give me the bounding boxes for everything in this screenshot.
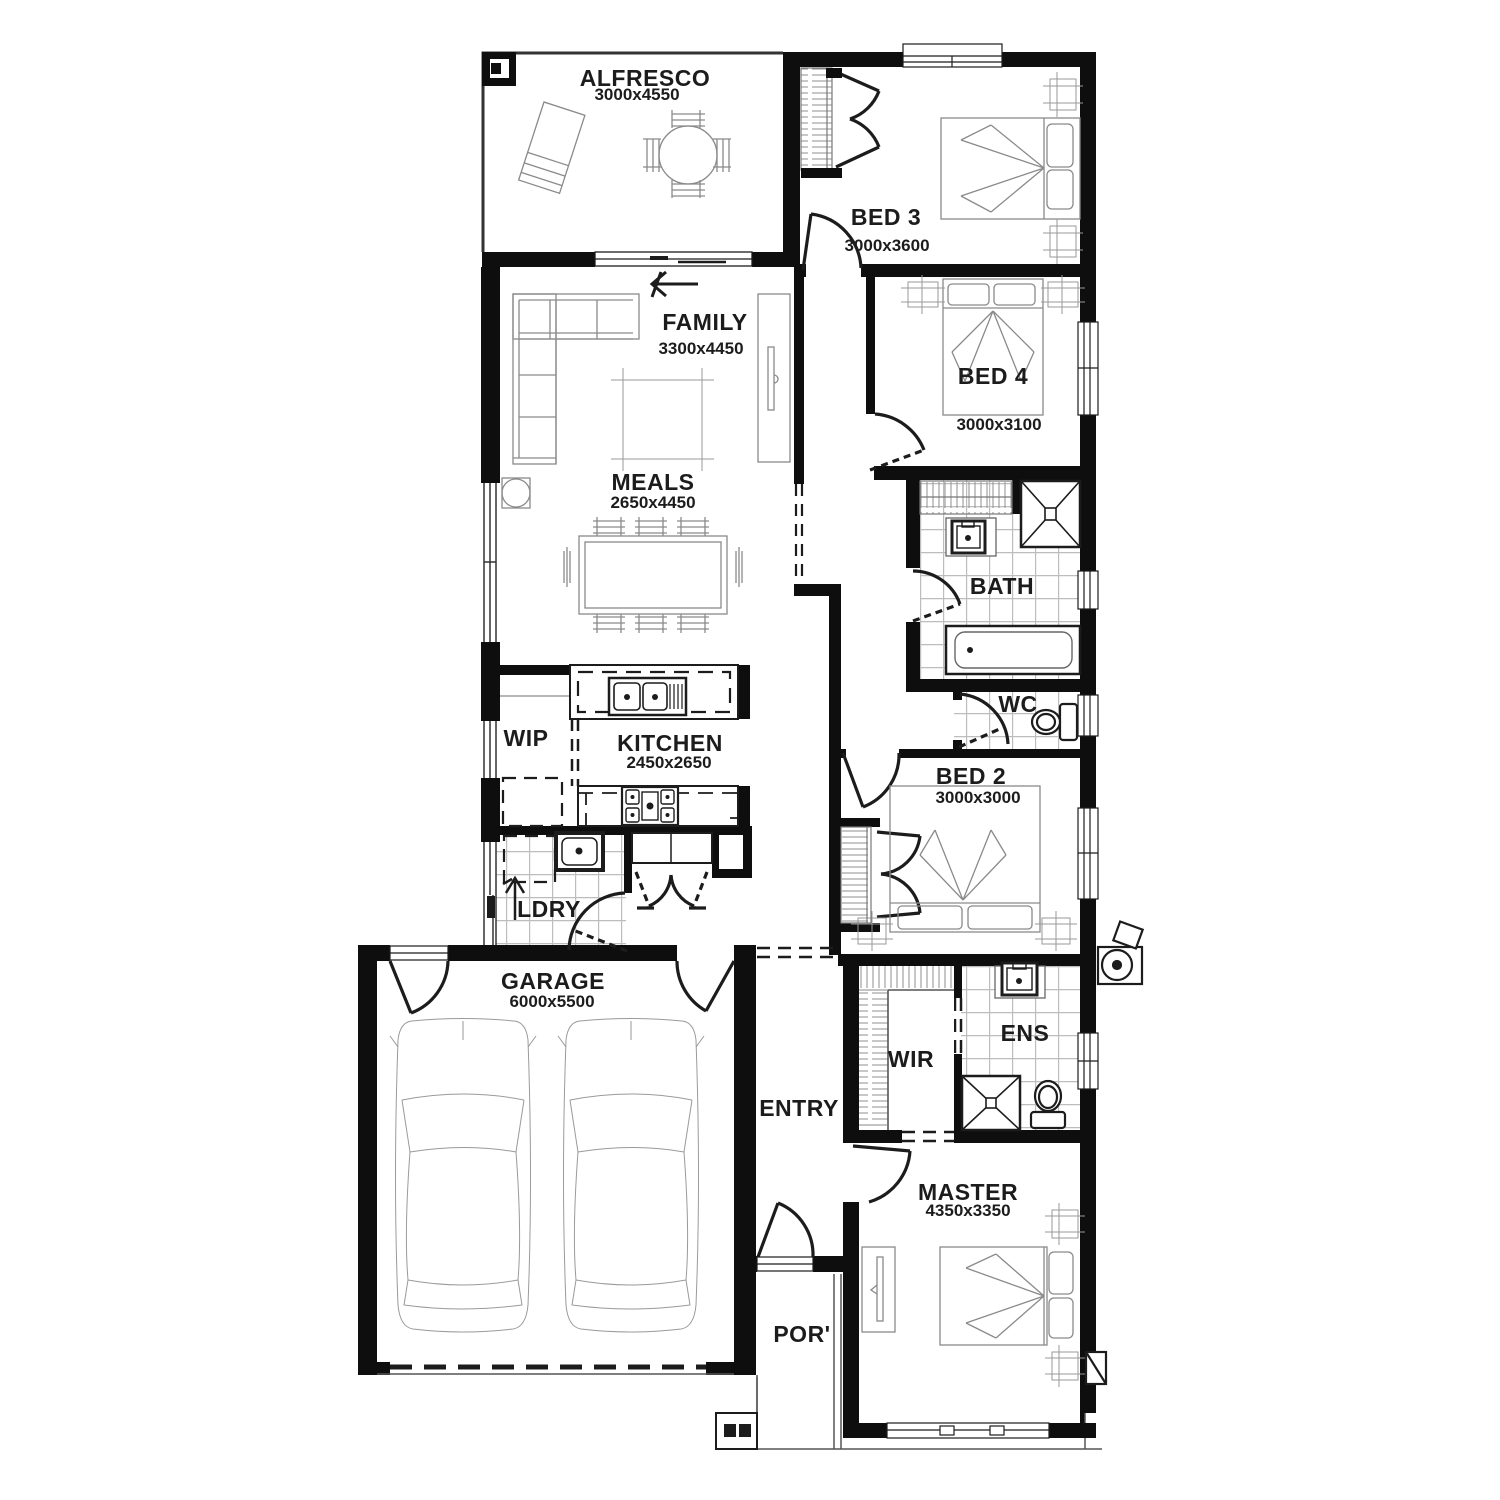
svg-text:WC: WC [998, 691, 1037, 717]
svg-text:GARAGE: GARAGE [501, 968, 605, 994]
svg-text:ENTRY: ENTRY [759, 1095, 839, 1121]
svg-text:3000x3000: 3000x3000 [935, 788, 1020, 807]
svg-text:3000x4550: 3000x4550 [594, 85, 679, 104]
svg-text:WIP: WIP [504, 725, 549, 751]
svg-text:BATH: BATH [970, 573, 1034, 599]
svg-text:3300x4450: 3300x4450 [658, 339, 743, 358]
svg-text:FAMILY: FAMILY [662, 309, 747, 335]
svg-text:6000x5500: 6000x5500 [509, 992, 594, 1011]
svg-text:WIR: WIR [888, 1046, 934, 1072]
svg-text:POR': POR' [773, 1321, 830, 1347]
svg-text:4350x3350: 4350x3350 [925, 1201, 1010, 1220]
svg-text:LDRY: LDRY [517, 896, 581, 922]
svg-text:2450x2650: 2450x2650 [626, 753, 711, 772]
svg-text:MEALS: MEALS [612, 469, 695, 495]
svg-text:BED 4: BED 4 [958, 363, 1028, 389]
svg-text:BED 3: BED 3 [851, 204, 921, 230]
svg-text:ENS: ENS [1001, 1020, 1050, 1046]
svg-text:3000x3600: 3000x3600 [844, 236, 929, 255]
svg-text:2650x4450: 2650x4450 [610, 493, 695, 512]
svg-text:BED 2: BED 2 [936, 763, 1006, 789]
svg-text:3000x3100: 3000x3100 [956, 415, 1041, 434]
